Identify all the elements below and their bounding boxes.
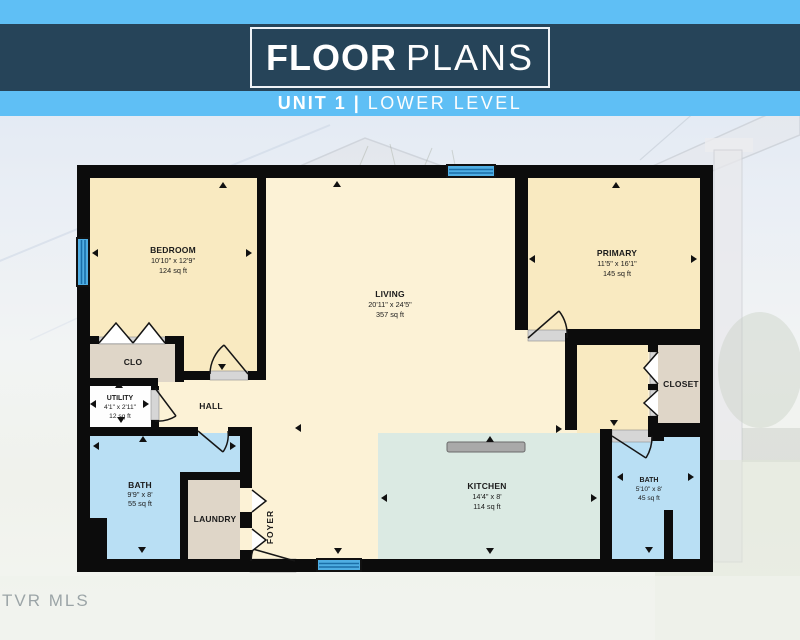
- foyer-label: FOYER: [265, 510, 275, 544]
- living-area: 357 sq ft: [376, 310, 404, 319]
- primary-area: 145 sq ft: [603, 269, 631, 278]
- page-title-primary: FLOOR: [266, 37, 397, 79]
- living-window: [446, 164, 496, 178]
- vestibule-floor: [577, 332, 648, 433]
- bedroom-dims: 10'10" x 12'9": [151, 256, 195, 265]
- floor-plan-page: BEDROOM 10'10" x 12'9" 124 sq ft LIVING …: [0, 0, 800, 640]
- primary-dims: 11'5" x 16'1": [597, 259, 637, 268]
- hall-label: HALL: [199, 401, 222, 411]
- living-dims: 20'11" x 24'5": [368, 300, 412, 309]
- bath-left-name: BATH: [128, 480, 152, 490]
- primary-name: PRIMARY: [597, 248, 637, 258]
- utility-name: UTILITY: [107, 395, 134, 402]
- closet-label: CLOSET: [663, 379, 699, 389]
- foyer-window: [316, 558, 362, 572]
- kitchen-area: 114 sq ft: [473, 502, 500, 511]
- page-title-secondary: PLANS: [406, 37, 534, 79]
- bath-right-area: 45 sq ft: [638, 495, 660, 502]
- laundry-label: LAUNDRY: [194, 514, 237, 524]
- kitchen-counter: [447, 442, 525, 452]
- utility-area: 12 sq ft: [109, 413, 131, 420]
- bedroom-name: BEDROOM: [150, 245, 196, 255]
- mls-watermark: TVR MLS: [2, 591, 90, 611]
- clo-label: CLO: [124, 357, 143, 367]
- utility-dims: 4'1" x 2'11": [104, 404, 137, 411]
- bath-left-area: 55 sq ft: [128, 499, 152, 508]
- title-box: FLOOR PLANS: [250, 27, 550, 88]
- bath-left-dims: 9'9" x 8': [127, 490, 153, 499]
- bedroom-window: [76, 237, 90, 287]
- bedroom-area: 124 sq ft: [159, 266, 187, 275]
- kitchen-dims: 14'4" x 8': [472, 492, 502, 501]
- bath-right-dims: 5'10" x 8': [636, 486, 663, 493]
- kitchen-name: KITCHEN: [467, 481, 506, 491]
- kitchen-label: KITCHEN 14'4" x 8' 114 sq ft: [467, 481, 506, 511]
- living-name: LIVING: [375, 289, 405, 299]
- bath-right-name: BATH: [640, 477, 659, 484]
- bath-right-label: BATH 5'10" x 8' 45 sq ft: [636, 477, 663, 502]
- floor-plan: BEDROOM 10'10" x 12'9" 124 sq ft LIVING …: [0, 0, 800, 640]
- bath-left-label: BATH 9'9" x 8' 55 sq ft: [127, 480, 153, 508]
